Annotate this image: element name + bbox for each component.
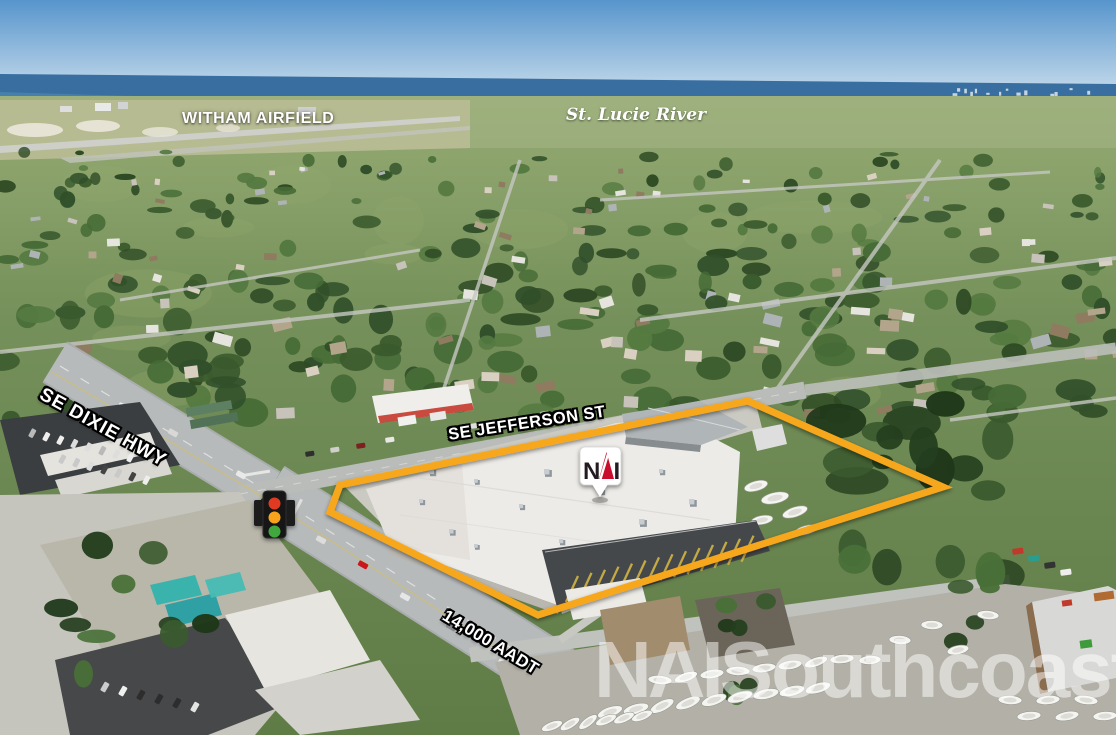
river-label: St. Lucie River — [566, 105, 706, 125]
signal-amber-light — [269, 512, 281, 524]
watermark-brand: NAI — [594, 625, 720, 714]
signal-red-light — [269, 498, 281, 510]
brand-watermark: NAISouthcoast — [594, 630, 1116, 710]
marker-logo-n: N — [583, 458, 600, 485]
airfield-label: WITHAM AIRFIELD — [182, 110, 334, 128]
signal-green-light — [269, 526, 281, 538]
aerial-photo: N I WITHAM AIRFIELD St. Lucie River SE D… — [0, 0, 1116, 735]
watermark-name: Southcoast — [720, 625, 1116, 714]
marker-logo-i: I — [614, 458, 621, 485]
